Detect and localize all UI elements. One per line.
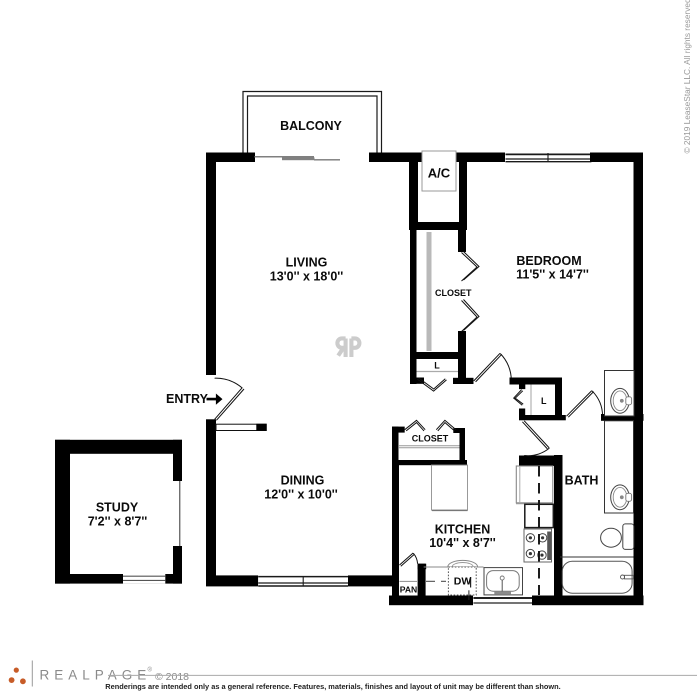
svg-text:LIVING: LIVING (286, 256, 328, 270)
svg-text:© 2019 LeaseStar LLC. All righ: © 2019 LeaseStar LLC. All rights reserve… (682, 0, 692, 154)
svg-text:Renderings are intended only a: Renderings are intended only as a genera… (105, 682, 560, 691)
svg-text:10'4'' x 8'7'': 10'4'' x 8'7'' (429, 536, 496, 550)
svg-text:DINING: DINING (281, 474, 325, 488)
svg-text:© 2018: © 2018 (155, 671, 189, 683)
svg-text:KITCHEN: KITCHEN (435, 523, 491, 537)
svg-text:DW: DW (454, 576, 472, 588)
svg-text:7'2'' x 8'7'': 7'2'' x 8'7'' (88, 515, 148, 529)
svg-text:L: L (434, 360, 440, 370)
svg-text:13'0'' x 18'0'': 13'0'' x 18'0'' (270, 270, 343, 284)
svg-text:11'5'' x 14'7'': 11'5'' x 14'7'' (516, 268, 589, 282)
svg-text:CLOSET: CLOSET (412, 434, 449, 444)
svg-text:ENTRY: ENTRY (166, 392, 209, 406)
svg-text:A/C: A/C (428, 166, 451, 181)
svg-text:®: ® (148, 667, 153, 674)
svg-text:CLOSET: CLOSET (435, 288, 472, 298)
svg-text:BEDROOM: BEDROOM (516, 254, 581, 268)
svg-text:BATH: BATH (565, 474, 599, 488)
svg-text:STUDY: STUDY (96, 501, 139, 515)
svg-text:BALCONY: BALCONY (280, 119, 342, 133)
svg-text:PAN: PAN (400, 585, 418, 595)
svg-text:12'0'' x 10'0'': 12'0'' x 10'0'' (264, 488, 337, 502)
svg-text:L: L (541, 396, 547, 406)
